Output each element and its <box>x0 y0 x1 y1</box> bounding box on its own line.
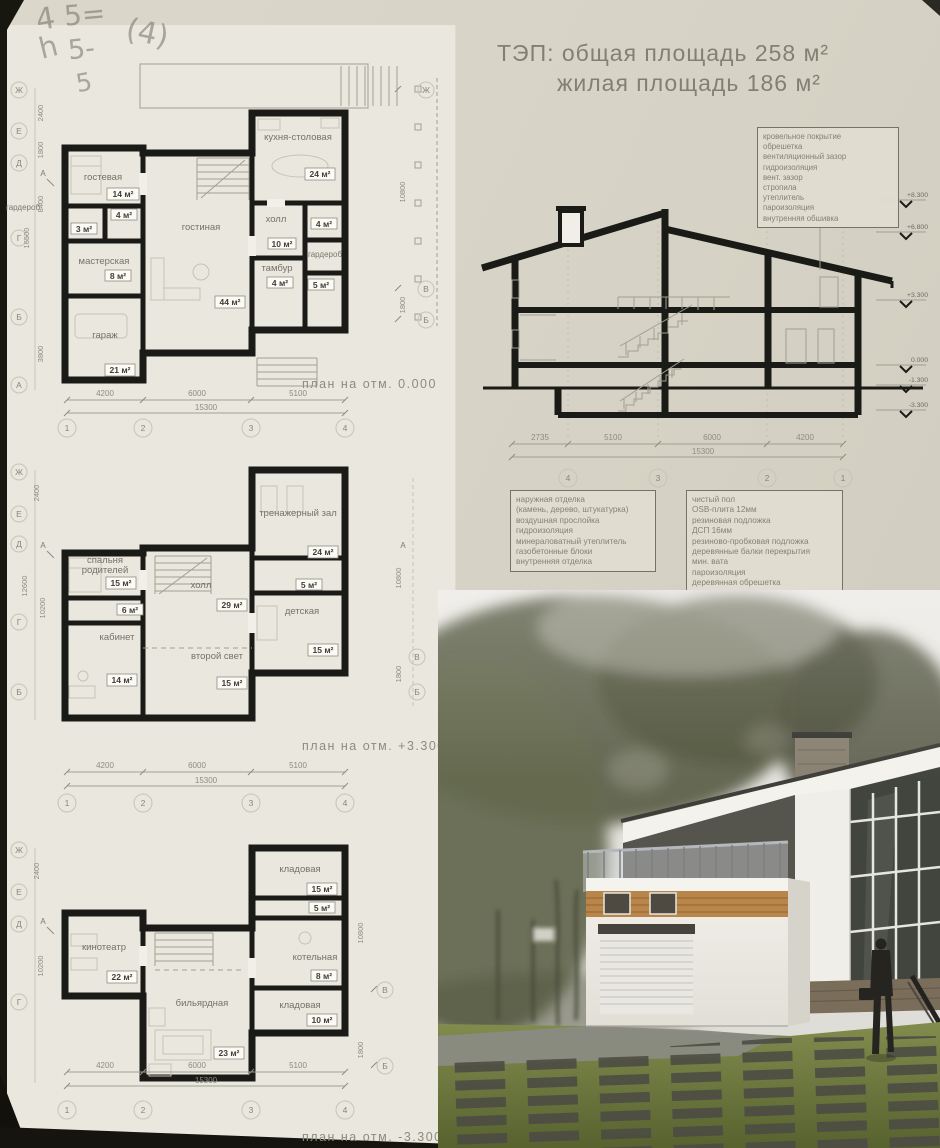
axis: 3 <box>249 423 254 433</box>
plan3-dimensions: 4200 6000 5100 15300 1 2 3 4 <box>58 1061 354 1119</box>
room-label: родителей <box>82 565 129 576</box>
spec-line: стропила <box>763 183 893 193</box>
room-area: 24 м² <box>310 169 331 179</box>
axis: 2 <box>141 1105 146 1115</box>
plan1-axes-left: Ж Е Д Г Б А 2400 1800 8400 16500 3800 А <box>11 82 54 393</box>
dim: 5100 <box>604 433 622 442</box>
room-label: тамбур <box>261 263 292 274</box>
axis: Е <box>16 887 22 897</box>
room-area: 4 м² <box>116 210 132 220</box>
level-mark: +8.300 <box>907 192 928 199</box>
section-structure <box>482 206 923 415</box>
dim: 10800 <box>356 923 365 944</box>
axis: 3 <box>656 473 661 483</box>
axis: В <box>382 985 388 995</box>
spec-line: ДСП 16мм <box>692 526 837 536</box>
dim: 6000 <box>188 761 206 770</box>
room-area: 10 м² <box>312 1015 333 1025</box>
room-label: кладовая <box>279 1000 320 1011</box>
spec-line: резиновая подложка <box>692 516 837 526</box>
architecture-presentation-board: { "handwriting": ["4", "5=", "(4)", "h",… <box>0 0 940 1148</box>
dim: 4200 <box>796 433 814 442</box>
dim: 5100 <box>289 761 307 770</box>
dim: 1800 <box>394 666 403 683</box>
level-mark: -1.300 <box>909 377 928 384</box>
plan3-axes-left: Ж Е Д Г 2400 10200 А <box>11 842 54 1083</box>
room-area: 44 м² <box>220 297 241 307</box>
axis: 1 <box>65 798 70 808</box>
room-area: 29 м² <box>222 600 243 610</box>
room-area: 23 м² <box>219 1048 240 1058</box>
room-area: 21 м² <box>110 365 131 375</box>
section-interior-lines <box>512 277 838 363</box>
axis: Г <box>17 233 22 243</box>
room-label: котельная <box>293 952 338 963</box>
room-area: 24 м² <box>313 547 334 557</box>
dim: 1800 <box>36 142 45 159</box>
room-label: второй свет <box>191 651 244 662</box>
spec-line: пароизоляция <box>692 568 837 578</box>
axis: Ж <box>422 85 430 95</box>
axis: 2 <box>765 473 770 483</box>
axis: 4 <box>343 1105 348 1115</box>
wall-spec-box: наружная отделка(камень, дерево, штукату… <box>510 490 656 572</box>
room-label: гардероб <box>308 250 342 259</box>
plan1-dimensions: 4200 6000 5100 15300 1 2 3 4 <box>58 389 354 437</box>
plan2-axes-left: Ж Е Д Г Б 2400 12600 10200 А <box>11 464 54 720</box>
spec-line: гидроизоляция <box>516 526 650 536</box>
axis: Б <box>423 315 429 325</box>
plan2-caption: план на отм. +3.300 <box>302 739 440 753</box>
plan3-walls <box>65 848 345 1078</box>
axis: 2 <box>141 423 146 433</box>
dim: 16500 <box>22 228 31 249</box>
spec-line: вентиляционный зазор <box>763 152 893 162</box>
level-mark: +6.800 <box>907 224 928 231</box>
dim: 1800 <box>356 1042 365 1059</box>
pencil-mark: 5= <box>63 0 107 33</box>
spec-line: деревянные балки перекрытия <box>692 547 837 557</box>
room-label: холл <box>191 580 212 591</box>
room-label: кабинет <box>100 632 136 643</box>
floor-plan-first: тренажерный зал 24 м² спальня родителей … <box>5 458 440 835</box>
spec-line: наружная отделка <box>516 495 650 505</box>
dim: 6000 <box>188 1061 206 1070</box>
dim-total: 15300 <box>692 447 715 456</box>
garage-side <box>788 878 810 1026</box>
room-label: кладовая <box>279 864 320 875</box>
exterior-rendering <box>438 590 940 1148</box>
axis: Ж <box>15 845 23 855</box>
dim: 10800 <box>394 568 403 589</box>
dim: 4200 <box>96 1061 114 1070</box>
level-mark: -3.300 <box>909 402 928 409</box>
room-area: 14 м² <box>112 675 133 685</box>
axis: 3 <box>249 1105 254 1115</box>
room-area: 8 м² <box>316 971 332 981</box>
room-area: 22 м² <box>112 972 133 982</box>
section-marker: А <box>40 917 46 926</box>
axis: 1 <box>841 473 846 483</box>
tep-title: ТЭП: общая площадь 258 м² жилая площадь … <box>497 38 829 98</box>
section-stairs <box>618 297 730 411</box>
spec-line: газобетонные блоки <box>516 547 650 557</box>
axis: А <box>16 380 22 390</box>
dim: 2400 <box>32 485 41 502</box>
axis: 2 <box>141 798 146 808</box>
dim: 6000 <box>703 433 721 442</box>
dim-total: 15300 <box>195 403 218 412</box>
axis: Д <box>16 158 22 168</box>
section-dimensions: 2735 5100 6000 4200 15300 4 3 2 1 <box>509 433 852 487</box>
spec-line: мин. вата <box>692 557 837 567</box>
plan3-axes-right: В Б 10800 1800 <box>356 923 393 1074</box>
section-marker: А <box>400 541 406 550</box>
room-label: гостиная <box>182 222 221 233</box>
garage-door <box>600 934 693 1014</box>
dim: 6000 <box>188 389 206 398</box>
room-area: 5 м² <box>313 280 329 290</box>
room-label: кухня-столовая <box>264 132 332 143</box>
spec-line: кровельное покрытие <box>763 132 893 142</box>
axis: Г <box>17 997 22 1007</box>
room-area: 15 м² <box>222 678 243 688</box>
dim: 2735 <box>531 433 549 442</box>
room-label: гараж <box>92 330 118 341</box>
band-window <box>604 893 630 914</box>
axis: Д <box>16 919 22 929</box>
axis: 1 <box>65 1105 70 1115</box>
spec-line: OSB-плита 12мм <box>692 505 837 515</box>
room-label: кинотеатр <box>82 942 126 953</box>
spec-line: утеплитель <box>763 193 893 203</box>
axis: Д <box>16 539 22 549</box>
room-label: гостевая <box>84 172 122 183</box>
axis: В <box>414 652 420 662</box>
room-area: 10 м² <box>272 239 293 249</box>
room-area: 6 м² <box>122 605 138 615</box>
spec-line: внутренняя обшивка <box>763 214 893 224</box>
spec-line: гидроизоляция <box>763 163 893 173</box>
floor-plan-basement: кладовая 15 м² 5 м² кинотеатр 22 м² коте… <box>5 838 440 1148</box>
spec-line: резиново-пробковая подложка <box>692 537 837 547</box>
room-area: 15 м² <box>111 578 132 588</box>
room-area: 4 м² <box>316 219 332 229</box>
dim: 10200 <box>36 956 45 977</box>
dim: 12600 <box>20 576 29 597</box>
dim: 4200 <box>96 761 114 770</box>
room-label: мастерская <box>79 256 130 267</box>
axis: Ж <box>15 467 23 477</box>
room-area: 8 м² <box>110 271 126 281</box>
axis: 4 <box>566 473 571 483</box>
axis: Е <box>16 126 22 136</box>
room-label: детская <box>285 606 319 617</box>
room-area: 14 м² <box>113 189 134 199</box>
level-mark: 0.000 <box>911 357 928 364</box>
axis: Б <box>414 687 420 697</box>
room-area: 15 м² <box>313 645 334 655</box>
room-area: 4 м² <box>272 278 288 288</box>
spec-line: воздушная прослойка <box>516 516 650 526</box>
spec-line: (камень, дерево, штукатурка) <box>516 505 650 515</box>
plan1-room-labels: гостевая 14 м² 4 м² 3 м² мастерская 8 м²… <box>6 132 342 376</box>
dim: 8400 <box>36 196 45 213</box>
axis: Б <box>16 687 22 697</box>
axis: Е <box>16 509 22 519</box>
tep-line-2: жилая площадь 186 м² <box>557 68 829 98</box>
band-window <box>650 893 676 914</box>
spec-line: обрешетка <box>763 142 893 152</box>
plan1-caption: план на отм. 0.000 <box>302 377 437 391</box>
garage <box>583 842 810 1026</box>
dim: 10200 <box>38 598 47 619</box>
level-mark: +3.300 <box>907 292 928 299</box>
plan2-dimensions: 4200 6000 5100 15300 1 2 3 4 <box>58 761 354 812</box>
dim-total: 15300 <box>195 1076 218 1085</box>
photo-glare <box>438 590 940 780</box>
spec-line: пароизоляция <box>763 203 893 213</box>
plan3-stairs <box>155 933 245 970</box>
axis: Б <box>382 1061 388 1071</box>
spec-line: внутренняя отделка <box>516 557 650 567</box>
room-area: 5 м² <box>314 903 330 913</box>
room-area: 3 м² <box>76 224 92 234</box>
axis: Б <box>16 312 22 322</box>
axis: 1 <box>65 423 70 433</box>
dim: 10800 <box>398 182 407 203</box>
tep-line-1: ТЭП: общая площадь 258 м² <box>497 38 829 68</box>
spec-line: чистый пол <box>692 495 837 505</box>
plan3-caption: план на отм. -3.300 <box>302 1130 440 1144</box>
roof-spec-box: кровельное покрытиеобрешеткавентиляционн… <box>757 127 899 228</box>
spec-line: минераловатный утеплитель <box>516 537 650 547</box>
plan2-axes-right: В Б 10800 1800 А <box>394 478 425 708</box>
axis: В <box>423 284 429 294</box>
room-label: тренажерный зал <box>259 508 337 519</box>
axis: 4 <box>343 423 348 433</box>
spec-line: вент. зазор <box>763 173 893 183</box>
axis: Г <box>17 617 22 627</box>
dim: 4200 <box>96 389 114 398</box>
dim: 3800 <box>36 346 45 363</box>
section-marker: А <box>40 541 46 550</box>
spec-line: деревянная обрешетка <box>692 578 837 588</box>
floor-plan-ground: гостевая 14 м² 4 м² 3 м² мастерская 8 м²… <box>5 58 440 453</box>
room-area: 5 м² <box>301 580 317 590</box>
dim-total: 15300 <box>195 776 218 785</box>
floor-spec-box: чистый полOSB-плита 12ммрезиновая подлож… <box>686 490 843 603</box>
section-marker: А <box>40 169 46 178</box>
axis: 3 <box>249 798 254 808</box>
dim: 5100 <box>289 1061 307 1070</box>
dim: 2400 <box>32 863 41 880</box>
room-area: 15 м² <box>312 884 333 894</box>
room-label: холл <box>266 214 287 225</box>
room-label: бильярдная <box>176 998 229 1009</box>
axis: Ж <box>15 85 23 95</box>
dim: 2400 <box>36 105 45 122</box>
axis: 4 <box>343 798 348 808</box>
dim: 1800 <box>398 297 407 314</box>
